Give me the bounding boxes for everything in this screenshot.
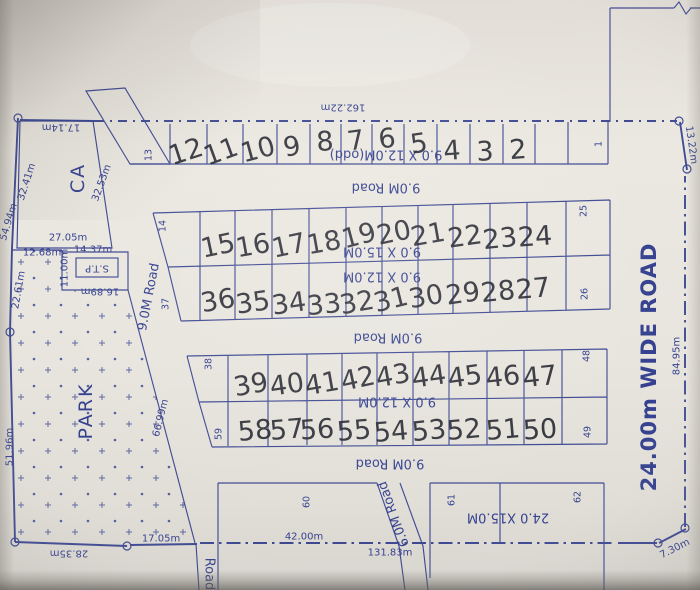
scanned-subdivision-plan: 162.22m 17.14m 13.22m 84.95m 7.30m 131.8… [0, 0, 700, 590]
site-plan-drawing: 162.22m 17.14m 13.22m 84.95m 7.30m 131.8… [0, 0, 700, 590]
photo-shadows [0, 0, 700, 590]
